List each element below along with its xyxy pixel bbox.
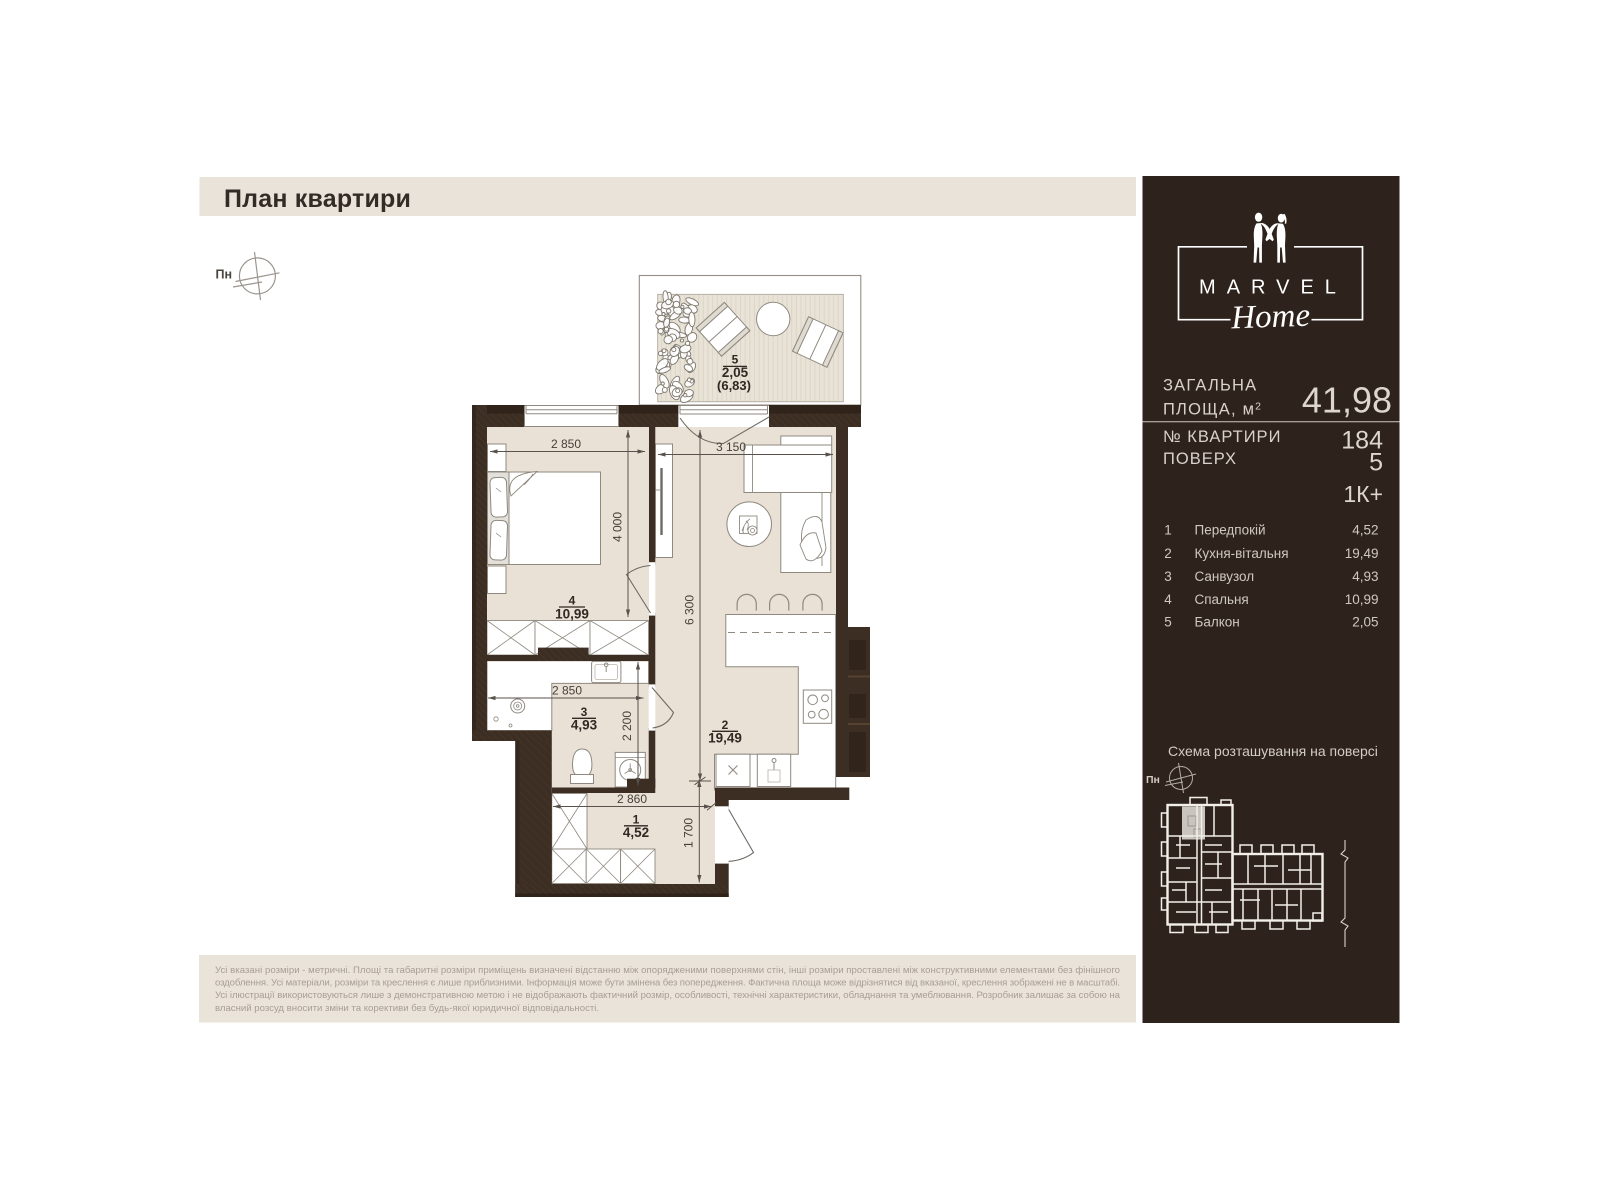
svg-text:2 850: 2 850 [551,437,581,451]
svg-text:4,52: 4,52 [1352,523,1378,538]
svg-text:1К+: 1К+ [1343,481,1383,507]
svg-text:Санвузол: Санвузол [1195,569,1255,584]
svg-text:2 850: 2 850 [552,684,582,698]
svg-text:2 860: 2 860 [617,792,647,806]
svg-text:3: 3 [1164,569,1172,584]
svg-text:6 300: 6 300 [683,595,697,625]
svg-text:3 150: 3 150 [716,440,746,454]
svg-text:Пн: Пн [1146,774,1160,786]
svg-text:5: 5 [1369,449,1383,477]
svg-text:4: 4 [1164,592,1172,607]
svg-text:4,93: 4,93 [1352,569,1378,584]
svg-text:Home: Home [1230,298,1311,337]
svg-text:ПЛОЩА, м2: ПЛОЩА, м2 [1163,401,1262,419]
svg-text:1 700: 1 700 [682,818,696,848]
svg-text:10,99: 10,99 [555,607,589,622]
svg-text:Усі вказані розміри - метричні: Усі вказані розміри - метричні. Площі та… [215,965,1120,976]
svg-text:2 200: 2 200 [620,711,634,741]
svg-text:41,98: 41,98 [1302,380,1392,421]
svg-text:19,49: 19,49 [1345,546,1379,561]
svg-text:ЗАГАЛЬНА: ЗАГАЛЬНА [1163,377,1257,395]
svg-text:(6,83): (6,83) [717,378,751,393]
svg-text:4,52: 4,52 [623,825,649,840]
svg-text:MARVEL: MARVEL [1199,277,1347,299]
svg-text:власний розсуд вносити зміни т: власний розсуд вносити зміни та коректив… [215,1003,599,1014]
svg-text:Спальня: Спальня [1195,592,1249,607]
svg-text:оздоблення. Усі матеріали, роз: оздоблення. Усі матеріали, розміри та кр… [215,978,1120,989]
svg-text:№ КВАРТИРИ: № КВАРТИРИ [1163,428,1281,446]
svg-text:Кухня-вітальня: Кухня-вітальня [1195,546,1289,561]
svg-text:4 000: 4 000 [611,512,625,542]
svg-text:2: 2 [1164,546,1172,561]
svg-text:Усі ілюстрації використовуютьс: Усі ілюстрації використовуються лише з д… [215,990,1121,1001]
svg-text:План квартири: План квартири [224,185,411,213]
svg-text:Передпокій: Передпокій [1195,523,1266,538]
svg-text:Балкон: Балкон [1195,615,1240,630]
svg-text:4: 4 [569,594,576,608]
svg-text:4,93: 4,93 [571,718,598,733]
svg-text:2,05: 2,05 [1352,615,1378,630]
svg-text:ПОВЕРХ: ПОВЕРХ [1163,450,1237,468]
svg-text:19,49: 19,49 [708,731,742,746]
svg-text:1: 1 [1164,523,1172,538]
svg-text:10,99: 10,99 [1345,592,1379,607]
svg-text:Схема розташування на поверсі: Схема розташування на поверсі [1168,743,1378,759]
svg-text:5: 5 [1164,615,1172,630]
svg-text:Пн: Пн [216,268,233,282]
